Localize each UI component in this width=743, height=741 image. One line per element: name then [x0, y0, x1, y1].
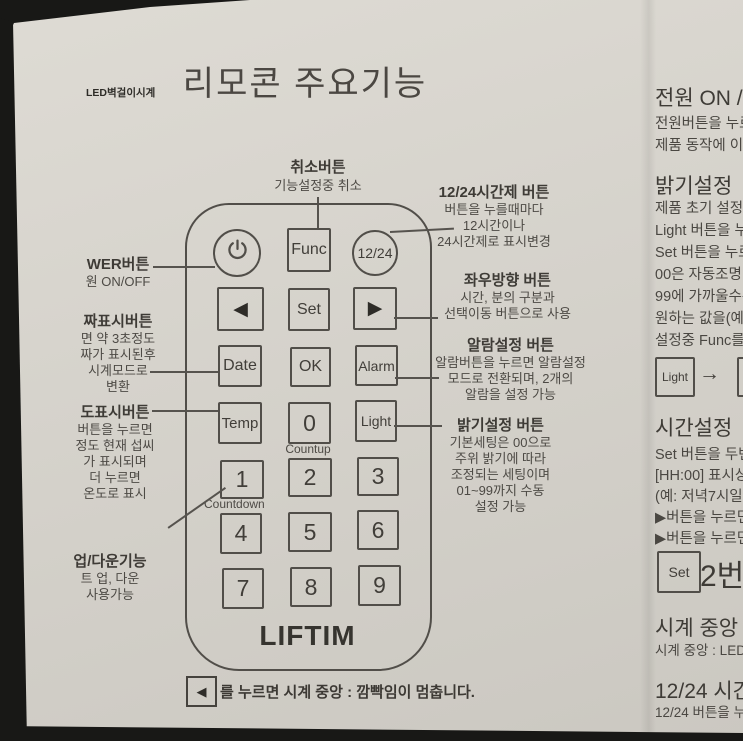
- annotation-line: 01~99까지 수동: [428, 483, 573, 499]
- date-button: Date: [218, 345, 262, 387]
- diagram-set-key: Set: [657, 551, 701, 593]
- annotation-line: 시간, 분의 구분과: [435, 290, 580, 306]
- left-arrow-icon: ◀: [197, 684, 207, 700]
- annotation-line: 알람버튼을 누르면 알람설정: [428, 355, 593, 371]
- page-title: 리모콘 주요기능: [160, 56, 450, 105]
- section-center-line: 시계 중앙 : LED: [655, 640, 743, 662]
- connector-line: [150, 371, 218, 373]
- connector-line: [152, 410, 218, 412]
- annotation-line: 트 업, 다운: [35, 571, 185, 587]
- power-button: [213, 229, 261, 277]
- connector-line: [394, 425, 442, 427]
- digit-6-button: 6: [357, 510, 399, 550]
- light-button: Light: [355, 400, 397, 442]
- right-arrow-icon: ▶: [368, 297, 383, 320]
- section-brightness-line: Set 버튼을 누르: [655, 242, 743, 264]
- digit-4-button: 4: [220, 513, 262, 554]
- annotation-line: 정도 현재 섭씨: [35, 438, 195, 454]
- diagram-set-text: 2번: [700, 551, 743, 595]
- annotation-line: 버튼을 누를때마다: [430, 202, 558, 218]
- annotation-line: 사용가능: [35, 587, 185, 603]
- annotation-title: 도표시버튼: [35, 404, 195, 422]
- annotation-line: 24시간제로 표시변경: [430, 234, 558, 250]
- annotation-line: 기본세팅은 00으로: [428, 435, 573, 451]
- section-brightness-line: 99에 가까울수록: [655, 286, 743, 308]
- set-button: Set: [288, 288, 330, 331]
- right-arrow-icon: →: [699, 362, 720, 386]
- annotation-line: 온도로 표시: [35, 486, 195, 502]
- connector-line: [153, 266, 215, 268]
- annotation-date-display: 짜표시버튼 면 약 3초정도 짜가 표시된후 시계모드로 변환: [40, 313, 196, 395]
- section-12-24-title: 12/24 시간: [655, 675, 743, 705]
- section-power-line: 전원버튼을 누르: [655, 113, 743, 135]
- annotation-brightness: 밝기설정 버튼 기본세팅은 00으로 주위 밝기에 따라 조정되는 세팅이며 0…: [428, 417, 573, 515]
- section-power-line: 제품 동작에 이상: [655, 135, 743, 157]
- annotation-temp-display: 도표시버튼 버튼을 누르면 정도 현재 섭씨 가 표시되며 더 누르면 온도로 …: [35, 404, 195, 502]
- annotation-lr-arrows: 좌우방향 버튼 시간, 분의 구분과 선택이동 버튼으로 사용: [435, 272, 580, 322]
- section-time-line: Set 버튼을 두번: [655, 444, 743, 466]
- watermark-label: LED벽걸이시계: [86, 85, 155, 100]
- section-time-line: (예: 저녁7시일경: [655, 486, 743, 508]
- digit-8-button: 8: [290, 567, 332, 607]
- section-brightness-line: 설정중 Func를: [655, 330, 743, 352]
- section-brightness-line: 00은 자동조명: [655, 264, 742, 286]
- left-arrow-button: ◀: [217, 287, 264, 331]
- brand-logo: LIFTIM: [240, 620, 375, 652]
- annotation-12-24: 12/24시간제 버튼 버튼을 누를때마다 12시간이나 24시간제로 표시변경: [430, 184, 558, 250]
- manual-page: LED벽걸이시계 리모콘 주요기능 취소버튼 기능설정중 취소 Func 12/…: [0, 0, 743, 741]
- digit-1-button: 1: [220, 460, 264, 499]
- footnote-left-arrow-key: ◀: [186, 676, 217, 707]
- annotation-alarm: 알람설정 버튼 알람버튼을 누르면 알람설정 모드로 전환되며, 2개의 알람을…: [428, 337, 593, 403]
- countdown-label: Countdown: [204, 497, 265, 511]
- annotation-cancel-title: 취소버튼: [263, 159, 373, 177]
- annotation-line: 조정되는 세팅이며: [428, 467, 573, 483]
- section-time-line: ▶버튼을 누르면: [655, 507, 743, 529]
- power-icon: [224, 237, 251, 269]
- func-button: Func: [287, 228, 331, 272]
- annotation-line: 변환: [40, 379, 196, 395]
- footnote-text: 를 누르면 시계 중앙 : 깜빡임이 멈춥니다.: [220, 681, 475, 702]
- section-brightness-line: 원하는 값을(예:: [655, 308, 743, 330]
- annotation-line: 더 누르면: [35, 470, 195, 486]
- connector-line: [394, 317, 438, 319]
- section-center-title: 시계 중앙 :: [655, 612, 743, 642]
- annotation-title: 12/24시간제 버튼: [430, 184, 558, 202]
- annotation-cancel-line: 기능설정중 취소: [248, 178, 388, 194]
- annotation-line: 가 표시되며: [35, 454, 195, 470]
- section-brightness-line: Light 버튼을 누르: [655, 220, 743, 242]
- annotation-title: 짜표시버튼: [40, 313, 196, 331]
- digit-5-button: 5: [288, 512, 332, 552]
- section-12-24-line: 12/24 버튼을 누: [655, 702, 743, 724]
- digit-9-button: 9: [358, 565, 401, 606]
- section-time-line: [HH:00] 표시상: [655, 465, 743, 487]
- section-power-title: 전원 ON /: [655, 82, 743, 112]
- section-time-title: 시간설정: [655, 412, 732, 442]
- connector-line: [395, 377, 439, 379]
- annotation-line: 선택이동 버튼으로 사용: [435, 306, 580, 322]
- annotation-title: 좌우방향 버튼: [435, 272, 580, 290]
- annotation-title: 밝기설정 버튼: [428, 417, 573, 435]
- annotation-power: WER버튼 원 ON/OFF: [45, 256, 191, 290]
- annotation-line: 짜가 표시된후: [40, 347, 196, 363]
- section-time-line: ▶버튼을 누르면: [655, 528, 743, 550]
- section-brightness-line: 제품 초기 설정은: [655, 198, 743, 220]
- alarm-button: Alarm: [355, 345, 398, 386]
- diagram-light-key: Light: [655, 357, 695, 397]
- countup-label: Countup: [282, 442, 334, 456]
- annotation-line: 버튼을 누르면: [35, 422, 195, 438]
- diagram-clipped-key: [737, 357, 743, 397]
- annotation-line: 모드로 전환되며, 2개의: [428, 371, 593, 387]
- annotation-title: 업/다운기능: [35, 553, 185, 571]
- annotation-line: 원 ON/OFF: [45, 274, 191, 290]
- page-crease: [640, 0, 656, 741]
- annotation-title: WER버튼: [45, 256, 191, 274]
- temp-button: Temp: [218, 402, 262, 444]
- annotation-line: 12시간이나: [430, 218, 558, 234]
- right-arrow-button: ▶: [353, 287, 397, 330]
- digit-3-button: 3: [357, 457, 399, 496]
- digit-2-button: 2: [288, 458, 332, 497]
- digit-0-button: 0: [288, 402, 331, 444]
- annotation-updown: 업/다운기능 트 업, 다운 사용가능: [35, 553, 185, 603]
- annotation-line: 주위 밝기에 따라: [428, 451, 573, 467]
- ok-button: OK: [290, 347, 331, 387]
- annotation-line: 알람을 설정 가능: [428, 387, 593, 403]
- section-brightness-title: 밝기설정: [655, 170, 732, 200]
- digit-7-button: 7: [222, 568, 264, 609]
- annotation-title: 알람설정 버튼: [428, 337, 593, 355]
- left-arrow-icon: ◀: [233, 298, 248, 321]
- annotation-line: 설정 가능: [428, 499, 573, 515]
- annotation-line: 면 약 3초정도: [40, 331, 196, 347]
- 12-24-button: 12/24: [352, 230, 398, 276]
